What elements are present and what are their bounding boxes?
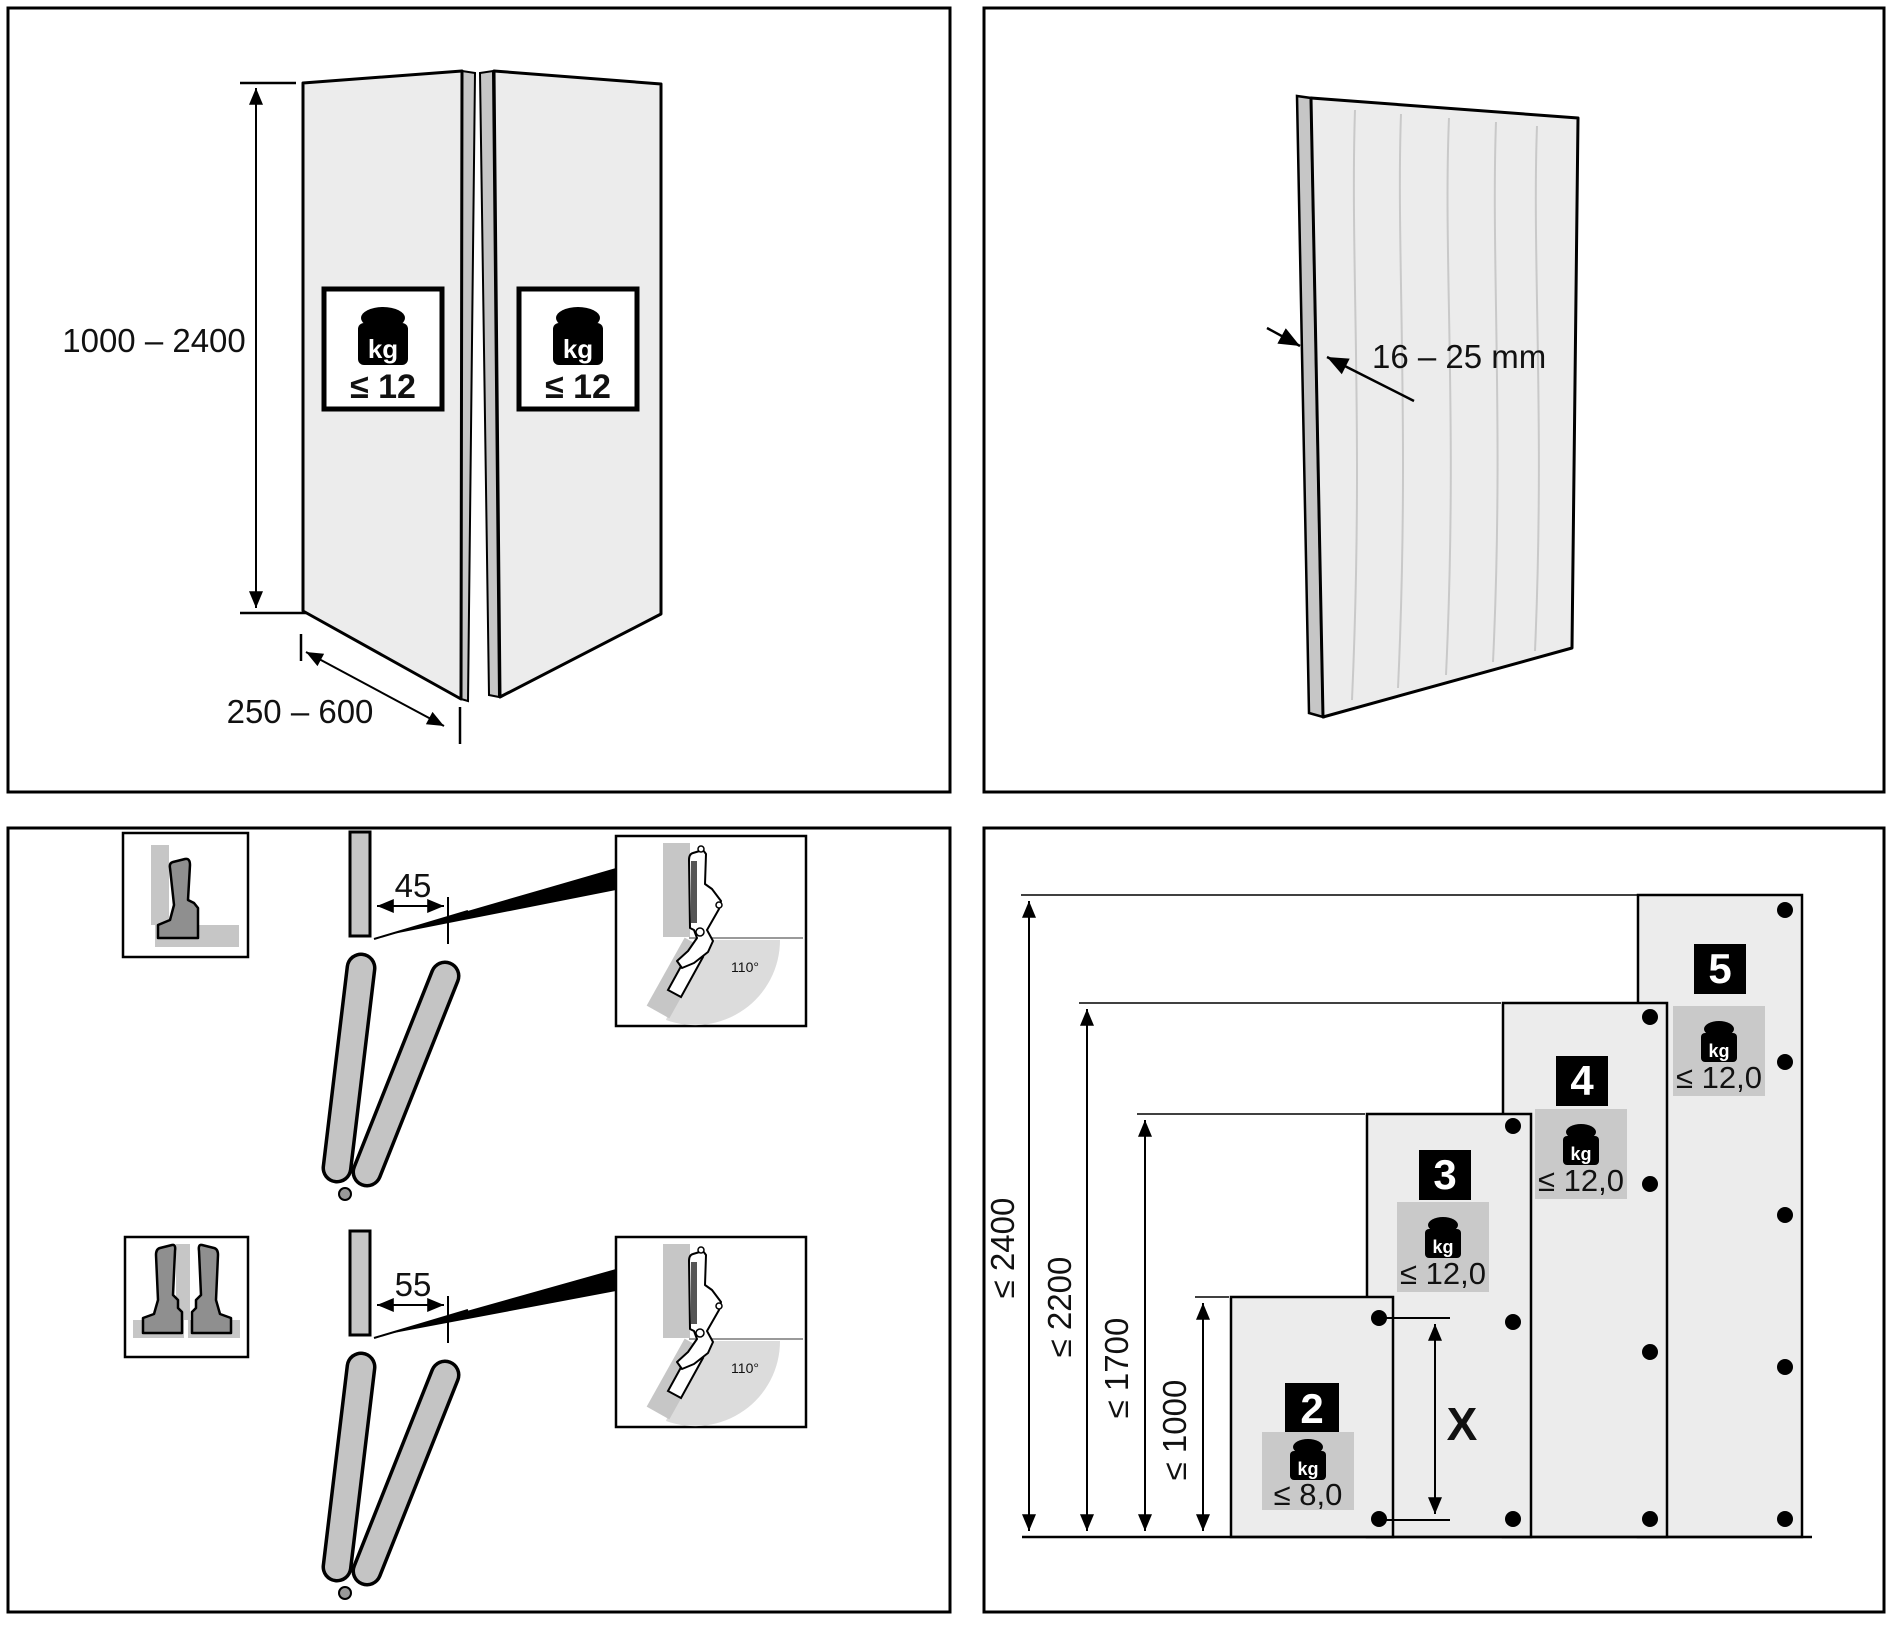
- spacing-label: X: [1447, 1398, 1478, 1450]
- hinge-count-badge-2: 2: [1285, 1383, 1339, 1435]
- hinge-count: 5: [1708, 945, 1731, 992]
- opening-angle-label: 110°: [731, 1360, 759, 1376]
- height-label: ≤ 2400: [984, 1198, 1021, 1299]
- inset-double-hinge: [125, 1237, 248, 1357]
- diagram-canvas: kg kg: [0, 0, 1892, 1620]
- hinge-count: 3: [1433, 1151, 1456, 1198]
- inset-single-hinge: [123, 833, 248, 957]
- max-weight-label: ≤ 8,0: [1274, 1477, 1343, 1512]
- hinge-count-badge-5: 5: [1694, 944, 1746, 994]
- instruction-sheet: kg kg: [0, 0, 1892, 1620]
- weight-box-5: ≤ 12,0: [1673, 1006, 1765, 1096]
- height-label: ≤ 1000: [1156, 1380, 1193, 1481]
- height-label: ≤ 1700: [1098, 1318, 1135, 1419]
- height-label: ≤ 2200: [1041, 1257, 1078, 1358]
- weight-box-2: ≤ 8,0: [1262, 1432, 1354, 1512]
- weight-box-3: ≤ 12,0: [1397, 1202, 1489, 1292]
- panel-folding-doors: 1000 – 2400 ≤ 12 ≤ 12 250 –: [8, 8, 950, 792]
- max-weight-label: ≤ 12: [545, 368, 611, 406]
- max-weight-label: ≤ 12: [350, 368, 416, 406]
- opening-angle-label: 110°: [731, 959, 759, 975]
- pivot-dot: [339, 1587, 351, 1599]
- weight-box-4: ≤ 12,0: [1535, 1109, 1627, 1199]
- wood-board: [1297, 96, 1578, 717]
- hinge-count-badge-4: 4: [1556, 1056, 1608, 1106]
- max-weight-label: ≤ 12,0: [1676, 1060, 1762, 1095]
- hinge-count-badge-3: 3: [1419, 1150, 1471, 1200]
- edge-distance-label: 55: [395, 1266, 432, 1303]
- max-weight-label: ≤ 12,0: [1400, 1256, 1486, 1291]
- max-weight-label: ≤ 12,0: [1538, 1163, 1624, 1198]
- hinge-count: 2: [1300, 1385, 1323, 1432]
- cabinet-side-panel: [350, 1231, 370, 1335]
- panel-border: [8, 8, 950, 792]
- panel-hinge-mounting: 45 110° 55: [8, 828, 950, 1612]
- panel-hinge-chart: ≤ 2400 ≤ 2200 ≤ 1700 ≤ 1000 X 2: [984, 828, 1884, 1612]
- edge-distance-label: 45: [395, 867, 432, 904]
- hinge-count: 4: [1570, 1057, 1594, 1104]
- width-range-label: 250 – 600: [227, 693, 374, 730]
- panel-door-thickness: 16 – 25 mm: [984, 8, 1884, 792]
- weight-badge: ≤ 12: [324, 289, 442, 409]
- cabinet-side-panel: [350, 832, 370, 936]
- weight-badge: ≤ 12: [519, 289, 637, 409]
- height-range-label: 1000 – 2400: [62, 322, 246, 359]
- pivot-dot: [339, 1188, 351, 1200]
- thickness-range-label: 16 – 25 mm: [1372, 338, 1546, 375]
